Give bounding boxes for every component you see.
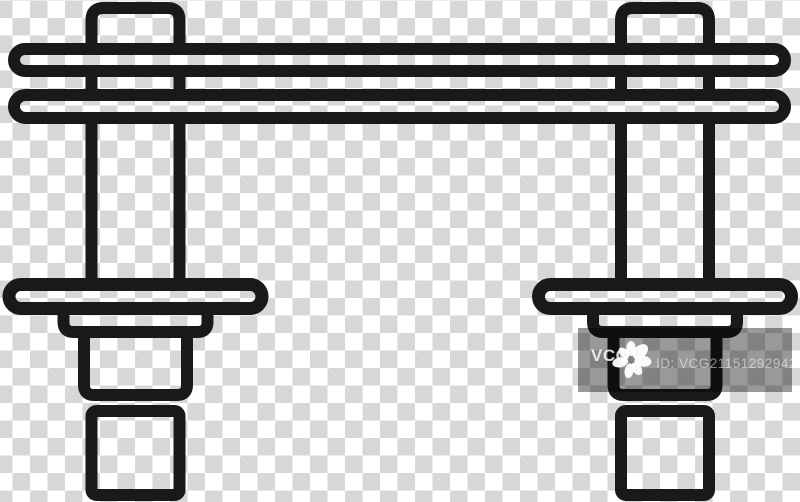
watermark-id-text: ID: VCG211512929427	[656, 357, 800, 371]
bridge-icon	[0, 0, 800, 502]
transparent-canvas: VCG ID: VCG211512929427	[0, 0, 800, 502]
vcg-flower-icon	[606, 333, 656, 387]
bridge-icon-strokes	[9, 8, 792, 495]
watermark-band: VCG ID: VCG211512929427	[578, 328, 792, 392]
